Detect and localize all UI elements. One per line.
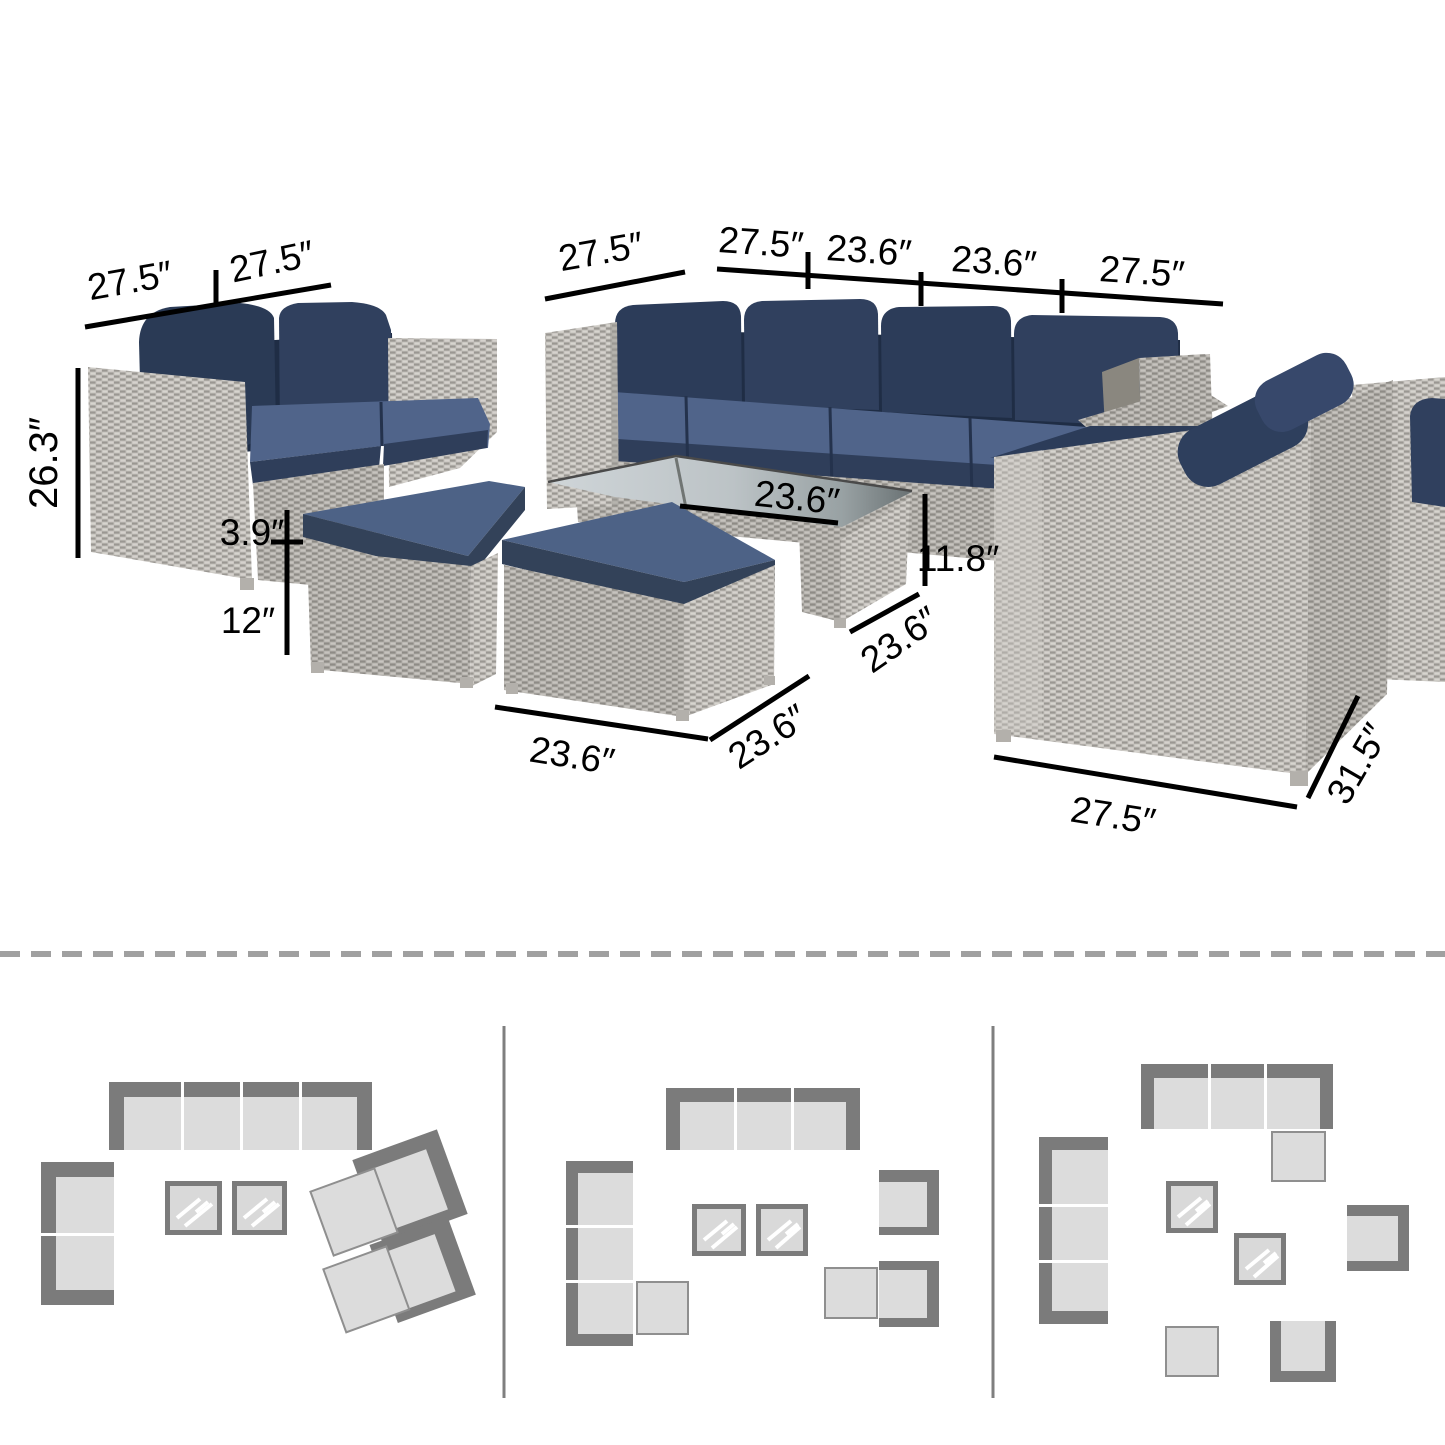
svg-text:23.6″: 23.6″ xyxy=(950,238,1038,285)
svg-text:12″: 12″ xyxy=(221,600,275,641)
svg-text:11.8″: 11.8″ xyxy=(917,538,999,579)
svg-text:3.9″: 3.9″ xyxy=(220,512,285,553)
svg-text:23.6″: 23.6″ xyxy=(825,227,913,274)
svg-text:26.3″: 26.3″ xyxy=(22,417,66,509)
svg-text:27.5″: 27.5″ xyxy=(1098,248,1186,295)
svg-text:27.5″: 27.5″ xyxy=(717,219,805,266)
